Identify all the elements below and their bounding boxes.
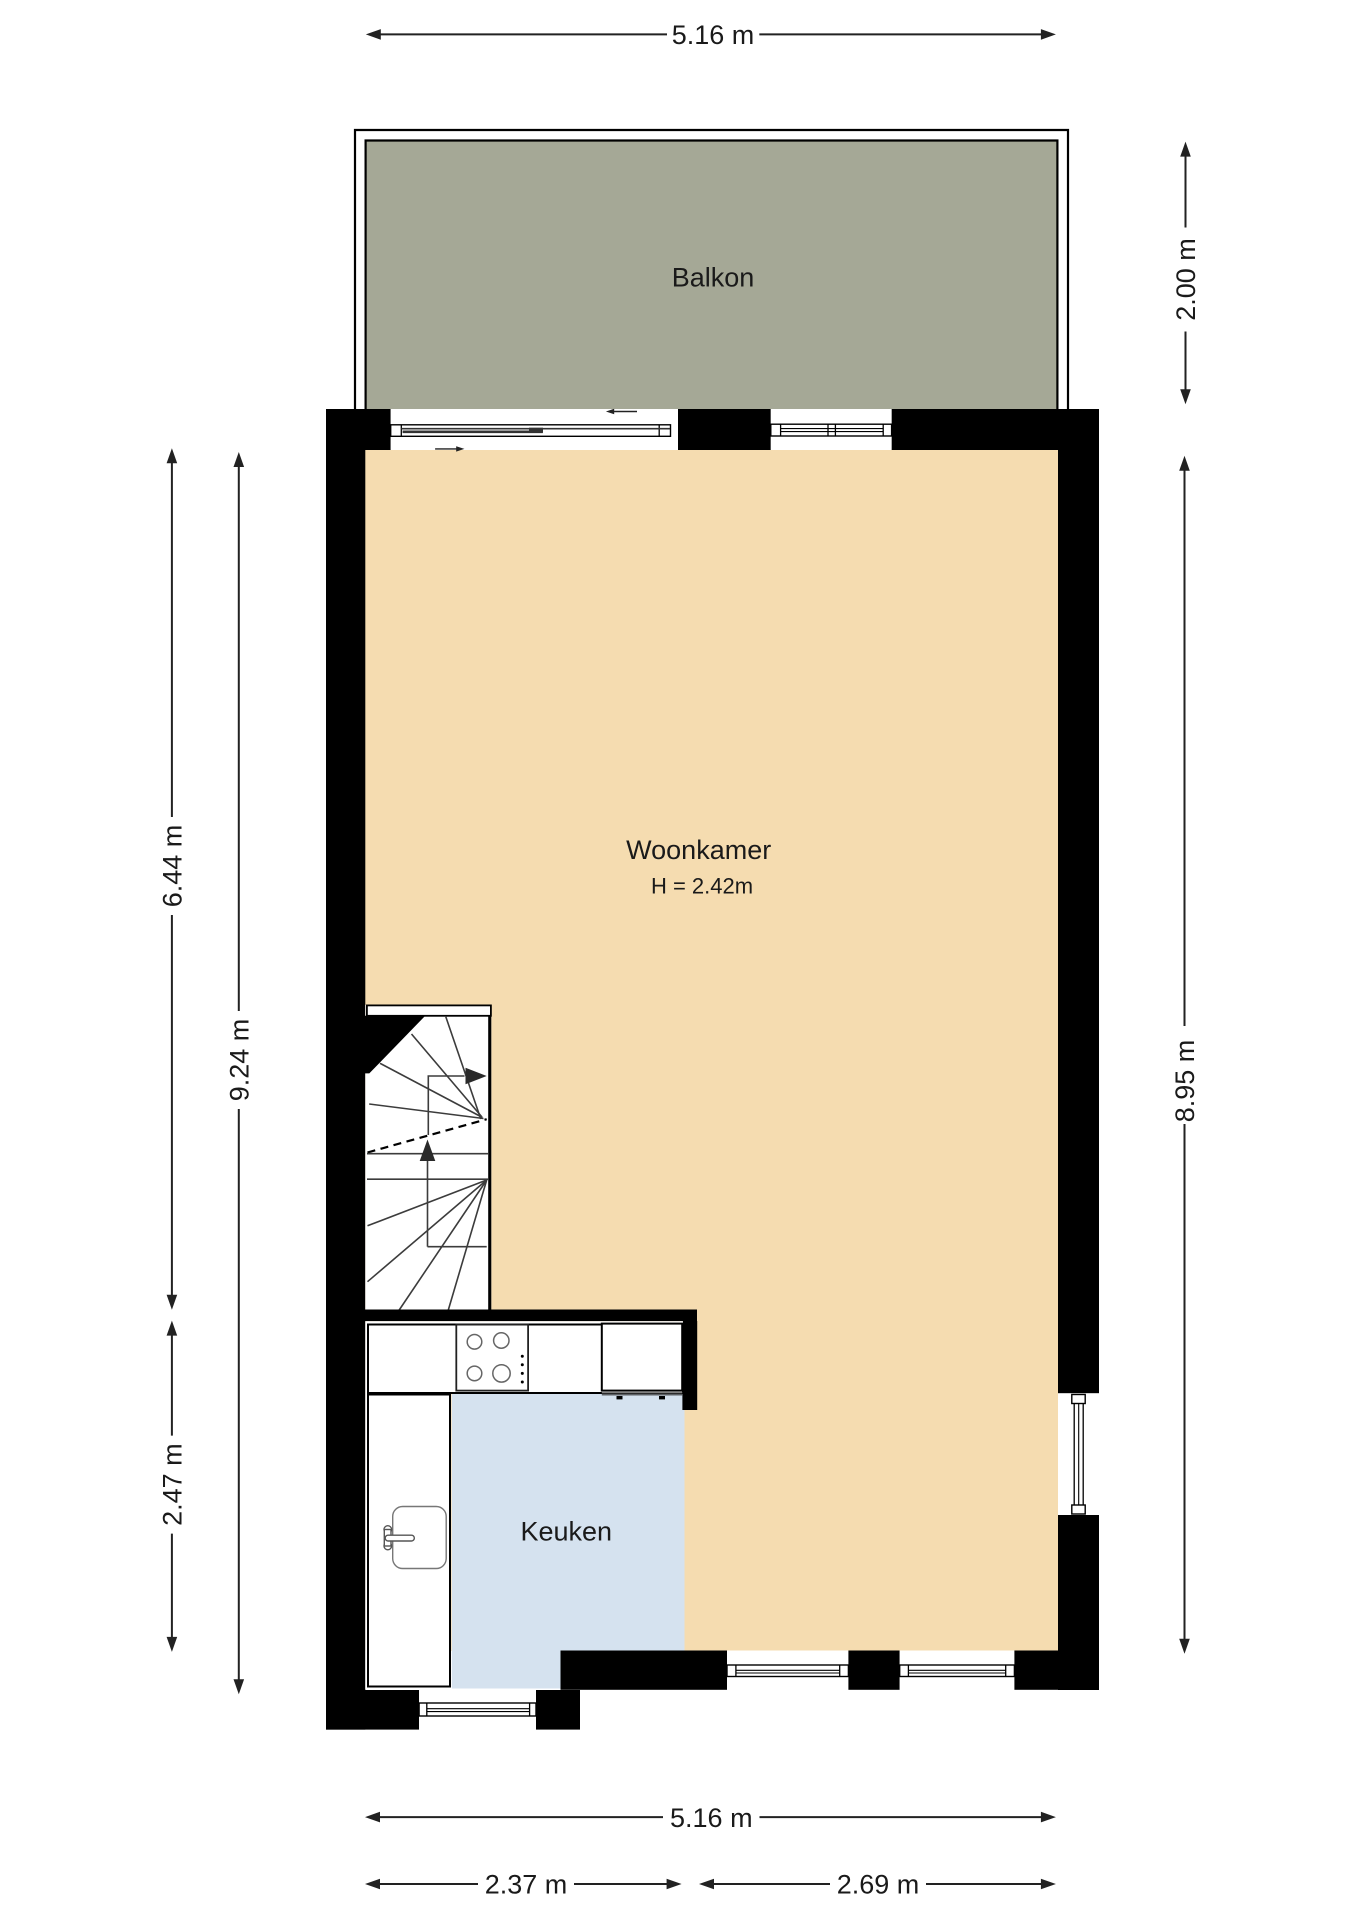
svg-text:Keuken: Keuken [521, 1517, 613, 1547]
svg-text:H = 2.42m: H = 2.42m [651, 874, 753, 899]
svg-text:5.16 m: 5.16 m [672, 20, 755, 50]
svg-text:2.69 m: 2.69 m [837, 1870, 920, 1900]
svg-text:Woonkamer: Woonkamer [626, 835, 771, 865]
svg-text:8.95 m: 8.95 m [1170, 1040, 1200, 1123]
svg-text:9.24 m: 9.24 m [225, 1019, 255, 1102]
svg-text:6.44 m: 6.44 m [158, 825, 188, 908]
svg-text:2.47 m: 2.47 m [158, 1443, 188, 1526]
svg-text:2.00 m: 2.00 m [1171, 238, 1201, 321]
svg-text:5.16 m: 5.16 m [670, 1803, 753, 1833]
svg-text:2.37 m: 2.37 m [485, 1870, 568, 1900]
svg-text:Balkon: Balkon [672, 262, 755, 292]
